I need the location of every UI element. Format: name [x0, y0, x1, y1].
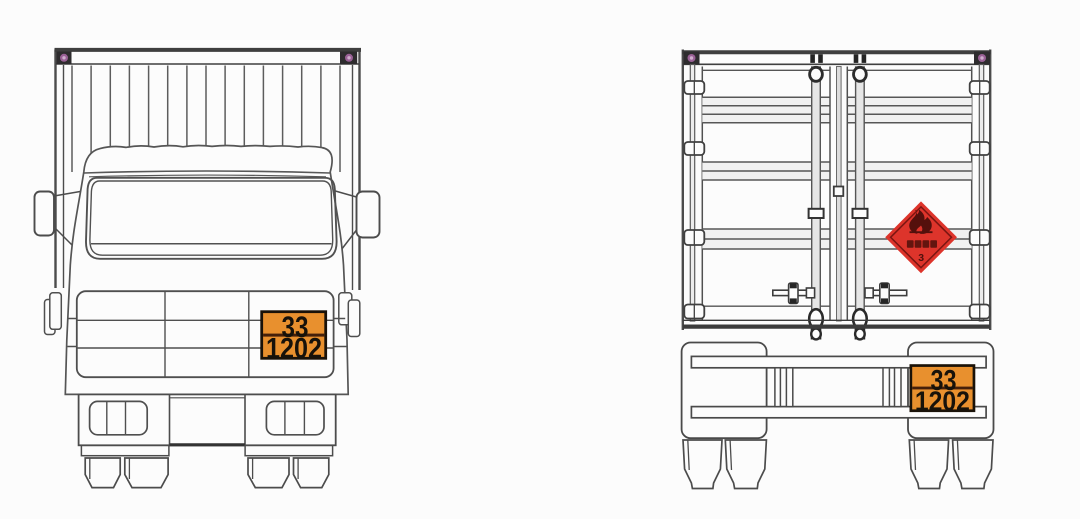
- svg-text:3: 3: [918, 252, 924, 264]
- svg-text:1202: 1202: [266, 333, 322, 365]
- svg-text:1202: 1202: [915, 386, 970, 417]
